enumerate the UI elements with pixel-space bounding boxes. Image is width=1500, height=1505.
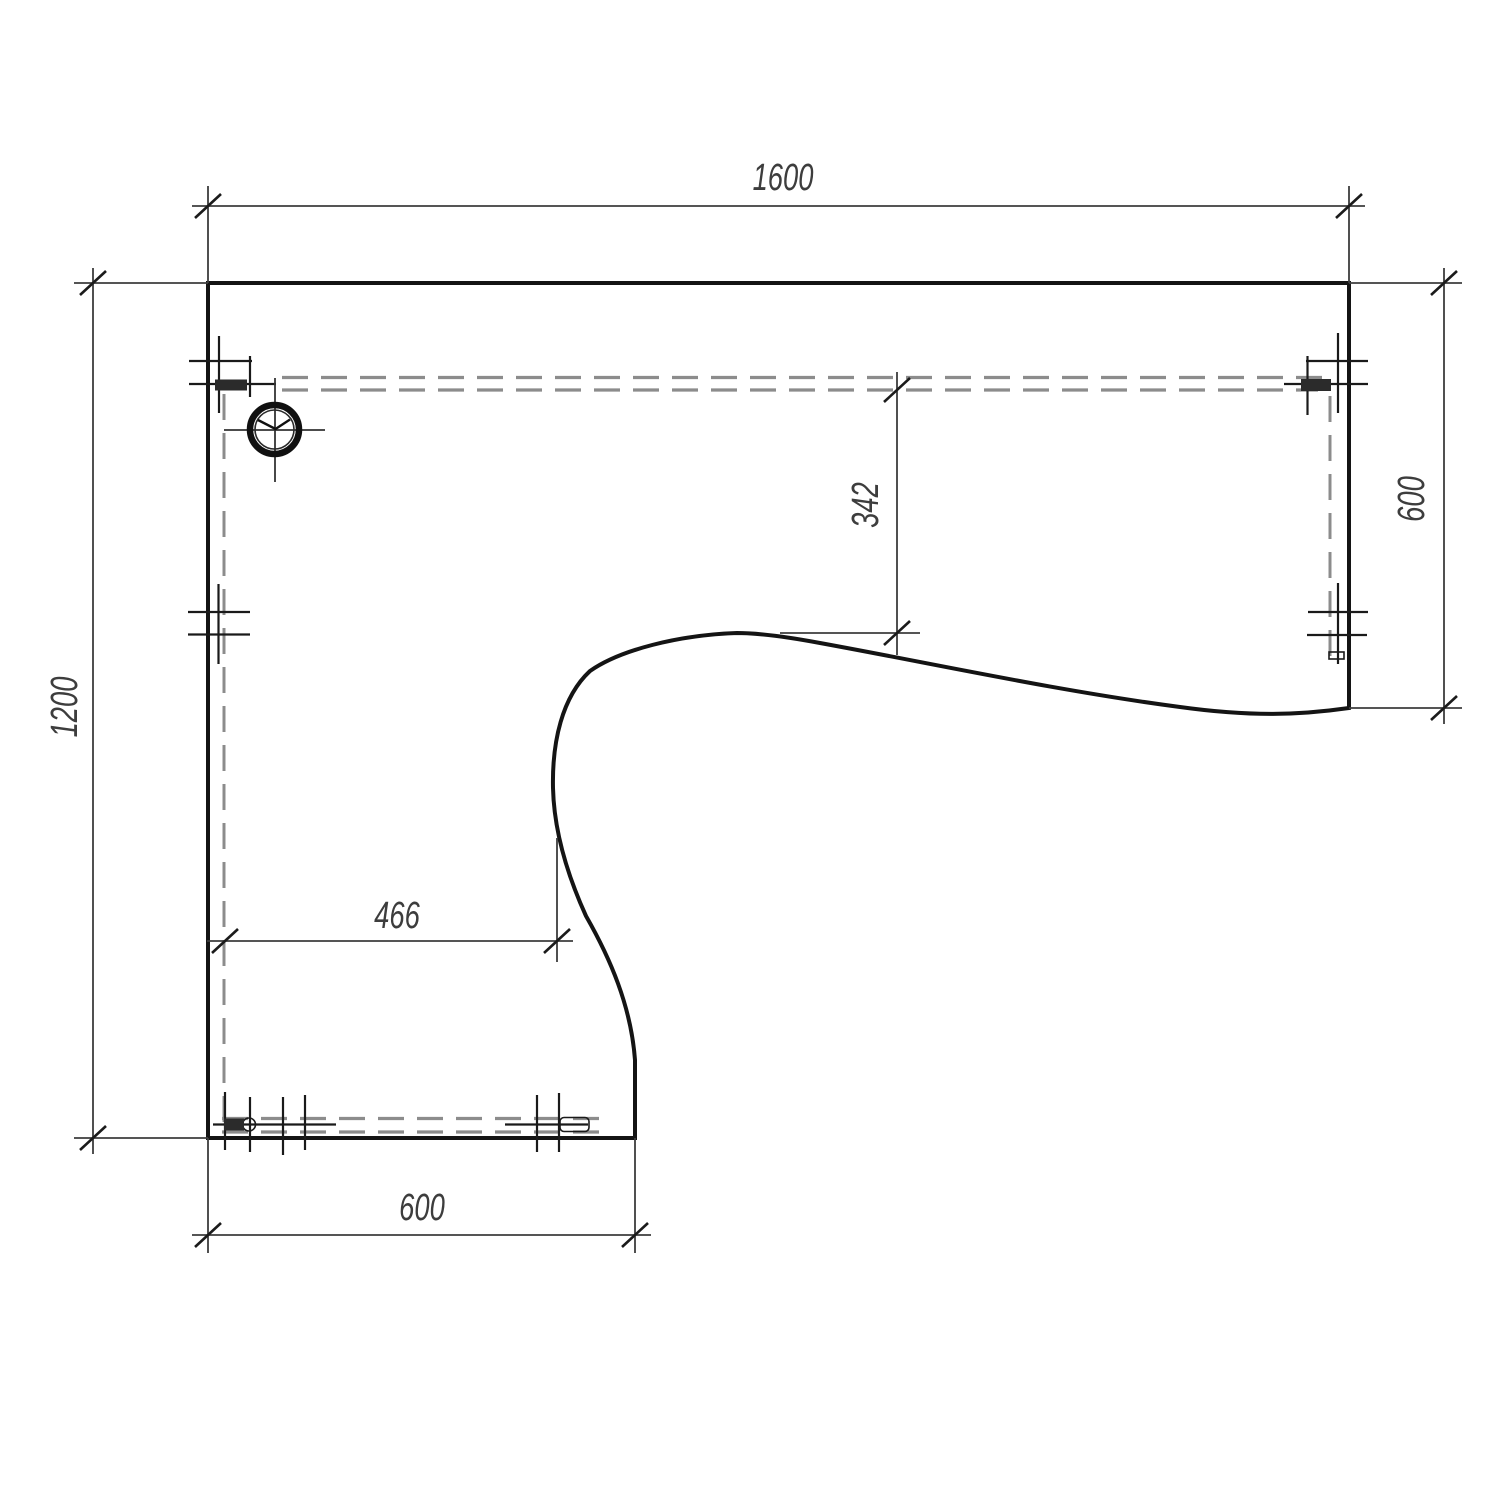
svg-text:1600: 1600 [753, 157, 814, 199]
svg-text:466: 466 [374, 895, 420, 937]
svg-text:342: 342 [845, 482, 887, 528]
svg-text:600: 600 [399, 1187, 445, 1229]
svg-text:1200: 1200 [44, 676, 86, 737]
svg-text:600: 600 [1391, 476, 1433, 522]
